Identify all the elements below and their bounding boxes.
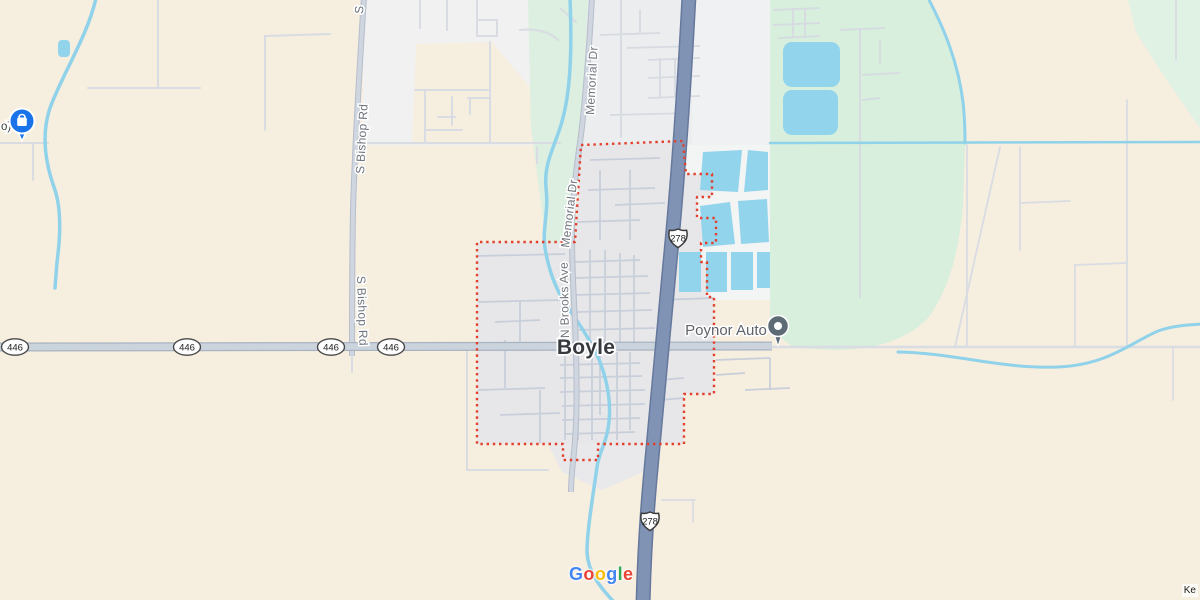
google-logo-letter: o	[595, 564, 606, 584]
road-label-s-bishop-rd-2: S Bishop Rd	[354, 276, 370, 346]
map-canvas[interactable]: Memorial Dr Memorial Dr N Brooks Ave S B…	[0, 0, 1200, 600]
google-logo[interactable]: Google	[569, 564, 633, 585]
route-shield-446-4: 446	[378, 339, 405, 355]
road-label-s-partial: S	[352, 5, 366, 14]
map-viewport[interactable]: Memorial Dr Memorial Dr N Brooks Ave S B…	[0, 0, 1200, 600]
poi-label-poynor-auto[interactable]: Poynor Auto	[685, 322, 767, 339]
shield-text: 278	[670, 234, 686, 245]
google-logo-letter: e	[623, 564, 633, 584]
google-logo-letter: g	[606, 564, 617, 584]
shield-text: 278	[642, 517, 658, 528]
google-logo-letter: G	[569, 564, 583, 584]
route-shield-446-2: 446	[174, 339, 201, 355]
shield-text: 446	[7, 342, 23, 353]
route-shield-446-3: 446	[318, 339, 345, 355]
google-logo-letter: o	[583, 564, 594, 584]
pin-dot-icon	[774, 322, 782, 330]
shield-text: 446	[323, 342, 339, 353]
keyboard-shortcuts-partial[interactable]: Ke	[1182, 584, 1198, 597]
route-shield-446-1: 446	[2, 339, 29, 355]
road-label-n-brooks-ave: N Brooks Ave	[557, 262, 572, 338]
town-label-boyle[interactable]: Boyle	[557, 336, 615, 359]
shield-text: 446	[179, 342, 195, 353]
shield-text: 446	[383, 342, 399, 353]
